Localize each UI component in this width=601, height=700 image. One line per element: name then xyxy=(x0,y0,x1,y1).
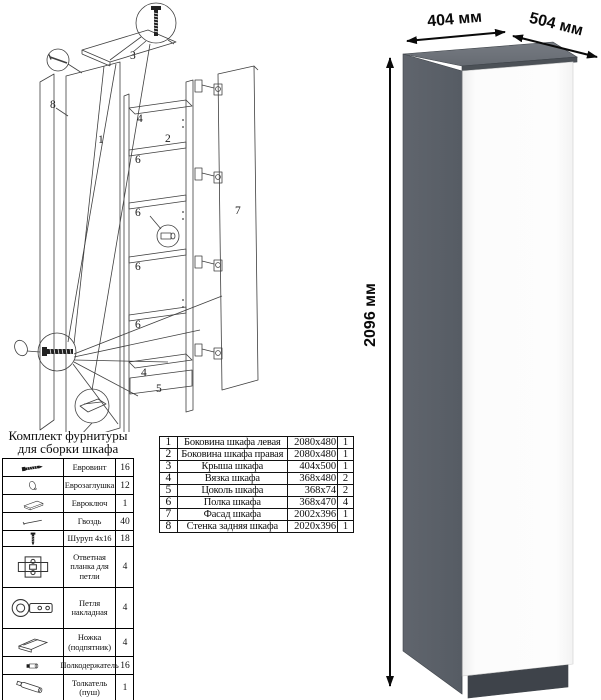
hardware-item-icon-cell xyxy=(3,513,63,530)
part-qty: 1 xyxy=(338,437,354,449)
hardware-table-row: Толкатель (пуш) 1 xyxy=(3,675,133,700)
hardware-kit-title: Комплект фурнитуры для сборки шкафа xyxy=(2,429,134,455)
part-size: 368x74 xyxy=(287,485,337,497)
hardware-item-icon xyxy=(6,515,60,529)
width-dimension-label: 404 мм xyxy=(427,9,483,31)
hardware-item-qty: 4 xyxy=(116,588,134,628)
part-name: Вязка шкафа xyxy=(177,473,287,485)
part-number: 3 xyxy=(160,461,178,473)
hardware-item-icon-cell xyxy=(3,531,63,546)
hardware-item-qty: 18 xyxy=(116,531,134,546)
hardware-item-icon xyxy=(6,591,60,625)
parts-table-row: 3 Крыша шкафа 404x500 1 xyxy=(160,461,354,473)
hardware-item-qty: 12 xyxy=(116,477,134,494)
part-qty: 2 xyxy=(338,473,354,485)
wardrobe-render: 404 мм 504 мм 2096 мм xyxy=(355,0,601,700)
parts-table-row: 6 Полка шкафа 368x470 4 xyxy=(160,497,354,509)
wardrobe-door xyxy=(462,62,573,676)
parts-table-row: 8 Стенка задняя шкафа 2020x396 1 xyxy=(160,521,354,533)
nail-detail-circle xyxy=(47,49,82,73)
part-name: Полка шкафа xyxy=(177,497,287,509)
diagram-label-6: 6 xyxy=(135,154,141,166)
hardware-item-name: Еврозаглушка xyxy=(63,476,116,495)
hardware-item-icon xyxy=(6,479,60,493)
diagram-label-2: 2 xyxy=(165,133,171,145)
hardware-table-row: Евровинт 16 xyxy=(3,459,133,477)
hardware-item-name: Евроключ xyxy=(63,494,116,513)
part-qty: 1 xyxy=(338,509,354,521)
parts-table-row: 5 Цоколь шкафа 368x74 2 xyxy=(160,485,354,497)
part-name: Цоколь шкафа xyxy=(177,485,287,497)
hardware-item-name: Петля накладная xyxy=(63,587,116,629)
exploded-diagram: 8 1 2 3 4 6 6 6 6 4 5 7 xyxy=(0,0,360,432)
part-name: Стенка задняя шкафа xyxy=(177,521,287,533)
hardware-item-qty: 16 xyxy=(116,657,134,674)
wardrobe-side-panel xyxy=(403,54,462,694)
part-size: 368x480 xyxy=(287,473,337,485)
part-size: 2020x396 xyxy=(287,521,337,533)
part-qty: 2 xyxy=(338,485,354,497)
hardware-item-name: Ножка (подпятник) xyxy=(63,628,116,657)
part-name: Боковина шкафа правая xyxy=(177,449,287,461)
hardware-item-icon-cell xyxy=(3,629,63,656)
hardware-table-row: Гвоздь 40 xyxy=(3,513,133,531)
hardware-item-qty: 1 xyxy=(116,675,134,700)
hardware-table-row: Еврозаглушка 12 xyxy=(3,477,133,495)
hardware-item-icon xyxy=(6,550,60,584)
hardware-item-icon-cell xyxy=(3,675,63,700)
hardware-table: Евровинт 16 Еврозаглушка 12 Евроключ 1 Г… xyxy=(2,458,134,700)
part-number: 6 xyxy=(160,497,178,509)
part-number: 5 xyxy=(160,485,178,497)
diagram-label-8: 8 xyxy=(50,99,56,111)
hardware-table-row: Шуруп 4x16 18 xyxy=(3,531,133,547)
parts-table-row: 4 Вязка шкафа 368x480 2 xyxy=(160,473,354,485)
right-side-panel-shape xyxy=(186,80,193,412)
hardware-item-name: Шуруп 4x16 xyxy=(63,530,116,547)
assembly-instruction-page: 8 1 2 3 4 6 6 6 6 4 5 7 Комплект фурниту… xyxy=(0,0,601,700)
drill-marks xyxy=(182,119,184,308)
hardware-table-row: Ножка (подпятник) 4 xyxy=(3,629,133,657)
hardware-kit-section: Комплект фурнитуры для сборки шкафа Евро… xyxy=(2,429,134,700)
part-size: 2080x480 xyxy=(287,449,337,461)
hardware-item-icon xyxy=(6,461,60,475)
height-dimension-label: 2096 мм xyxy=(362,283,379,347)
hardware-item-icon-cell xyxy=(3,588,63,628)
part-number: 8 xyxy=(160,521,178,533)
foot-detail-circle xyxy=(75,389,109,432)
parts-table-row: 1 Боковина шкафа левая 2080x480 1 xyxy=(160,437,354,449)
hardware-item-name: Полкодержатель xyxy=(63,656,116,675)
hardware-item-qty: 4 xyxy=(116,547,134,587)
diagram-label-4: 4 xyxy=(137,113,143,125)
part-size: 2080x480 xyxy=(287,437,337,449)
parts-table: 1 Боковина шкафа левая 2080x480 1 2 Боко… xyxy=(159,436,354,533)
hardware-table-row: Ответная планка для петли 4 xyxy=(3,547,133,588)
hardware-item-qty: 4 xyxy=(116,629,134,656)
diagram-label-5: 5 xyxy=(156,383,162,395)
part-size: 2002x396 xyxy=(287,509,337,521)
hardware-table-row: Евроключ 1 xyxy=(3,495,133,513)
diagram-label-6: 6 xyxy=(135,207,141,219)
hardware-item-name: Гвоздь xyxy=(63,512,116,531)
part-name: Фасад шкафа xyxy=(177,509,287,521)
part-size: 368x470 xyxy=(287,497,337,509)
part-qty: 4 xyxy=(338,497,354,509)
parts-table-row: 7 Фасад шкафа 2002x396 1 xyxy=(160,509,354,521)
diagram-label-3: 3 xyxy=(130,50,136,62)
hardware-item-icon-cell xyxy=(3,657,63,674)
part-number: 1 xyxy=(160,437,178,449)
diagram-label-7: 7 xyxy=(235,205,241,217)
hardware-item-icon xyxy=(6,632,60,653)
width-dimension-arrow xyxy=(407,32,505,41)
hardware-item-qty: 40 xyxy=(116,513,134,530)
depth-dimension-label: 504 мм xyxy=(527,10,584,40)
part-size: 404x500 xyxy=(287,461,337,473)
hardware-item-name: Толкатель (пуш) xyxy=(63,674,116,700)
left-side-panel-shape xyxy=(66,62,120,432)
hardware-item-qty: 1 xyxy=(116,495,134,512)
diagram-label-1: 1 xyxy=(98,134,104,146)
part-name: Боковина шкафа левая xyxy=(177,437,287,449)
hardware-item-icon xyxy=(6,497,60,511)
hardware-item-icon-cell xyxy=(3,547,63,587)
hardware-kit-title-line2: для сборки шкафа xyxy=(2,442,134,455)
hardware-table-row: Полкодержатель 16 xyxy=(3,657,133,675)
part-number: 2 xyxy=(160,449,178,461)
diagram-label-6: 6 xyxy=(135,319,141,331)
part-qty: 1 xyxy=(338,461,354,473)
part-number: 7 xyxy=(160,509,178,521)
hardware-item-name: Евровинт xyxy=(63,458,116,477)
part-qty: 1 xyxy=(338,449,354,461)
hardware-item-name: Ответная планка для петли xyxy=(63,546,116,588)
hardware-item-icon xyxy=(6,532,60,546)
shelf-support-detail-circle xyxy=(150,216,179,247)
parts-table-row: 2 Боковина шкафа правая 2080x480 1 xyxy=(160,449,354,461)
hardware-item-icon-cell xyxy=(3,459,63,476)
part-number: 4 xyxy=(160,473,178,485)
diagram-label-4: 4 xyxy=(141,367,147,379)
hardware-item-icon-cell xyxy=(3,477,63,494)
hardware-item-icon-cell xyxy=(3,495,63,512)
diagram-label-6: 6 xyxy=(135,261,141,273)
hardware-item-qty: 16 xyxy=(116,459,134,476)
part-qty: 1 xyxy=(338,521,354,533)
hardware-item-icon xyxy=(6,678,60,698)
hardware-table-row: Петля накладная 4 xyxy=(3,588,133,629)
hardware-item-icon xyxy=(6,659,60,673)
part-name: Крыша шкафа xyxy=(177,461,287,473)
hinge-details xyxy=(195,80,222,359)
door-shape xyxy=(218,66,258,390)
back-panel-shape xyxy=(40,74,54,430)
